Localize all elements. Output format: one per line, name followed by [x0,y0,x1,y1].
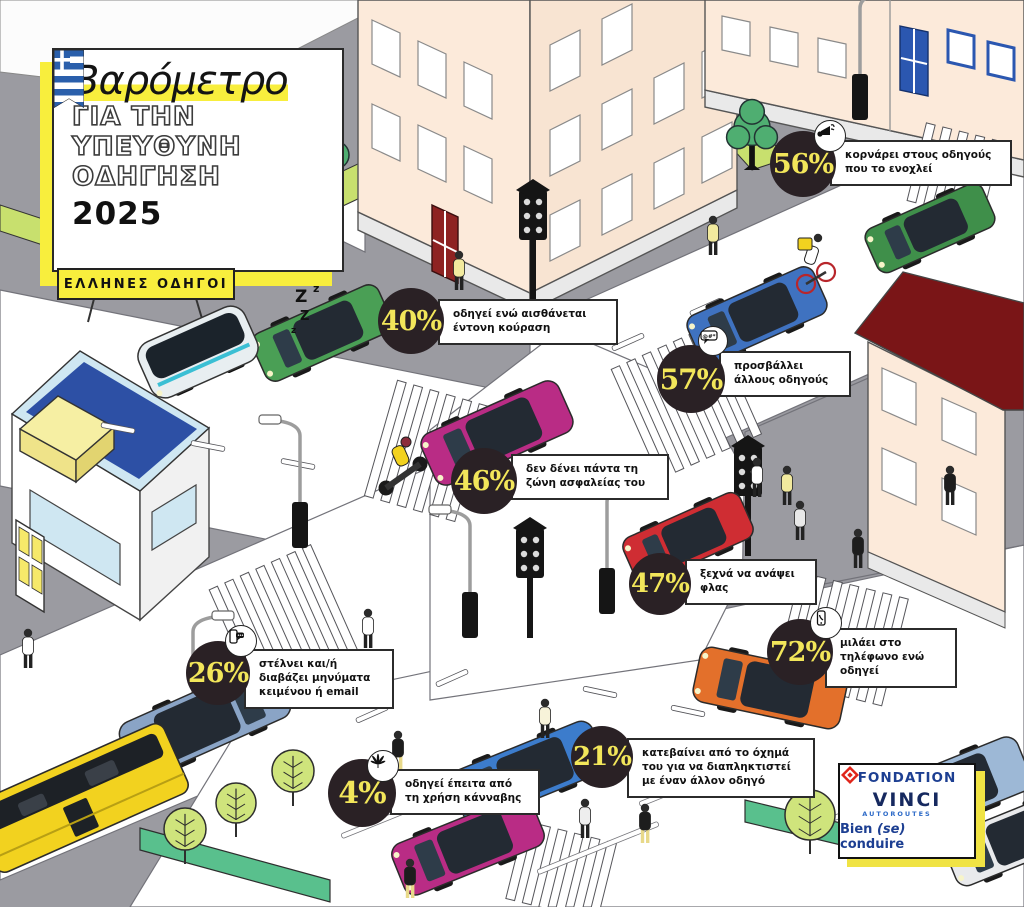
logo-autoroutes-text: AUTOROUTES [862,810,931,818]
logo-tagline: Bien (se) conduire [840,822,974,852]
title-main: Βαρόμετρο [72,60,326,102]
greek-flag-ribbon [54,50,84,108]
phone-call-icon [810,607,842,639]
callout-text: στέλνει και/ή διαβάζει μηνύματα κειμένου… [244,649,394,709]
horn-icon [814,120,846,152]
title-line3: ΥΠΕΥΘΥΝΗ [72,132,326,162]
svg-text:@#*!: @#*! [702,334,718,340]
callout-text: προσβάλλει άλλους οδηγούς [719,351,851,397]
title-year: 2025 [72,196,326,232]
callout-text: οδηγεί ενώ αισθάνεται έντονη κούραση [438,299,618,345]
callout-text: δεν δένει πάντα τη ζώνη ασφαλείας του [511,454,669,500]
greek-drivers-badge: ΕΛΛΗΝΕΣ ΟΔΗΓΟΙ [57,268,235,300]
infographic-poster: Z z Z z Βαρόμετρο ΓΙΑ ΤΗΝ ΥΠΕΥΘΥΝΗ ΟΔΗΓΗ… [0,0,1024,907]
callout-text: κατεβαίνει από το όχημά του για να διαπλ… [627,738,815,798]
callout-percent: 40% [378,288,444,354]
svg-text:z: z [313,282,319,295]
title-card: Βαρόμετρο ΓΙΑ ΤΗΝ ΥΠΕΥΘΥΝΗ ΟΔΗΓΗΣΗ 2025 [52,48,344,272]
logo-vinci-text: VINCI [873,789,942,811]
svg-text:Z: Z [300,309,309,324]
title-line4: ΟΔΗΓΗΣΗ [72,162,326,192]
logo-fondation-text: FONDATION [858,770,957,786]
callout-text: κορνάρει στους οδηγούς που το ενοχλεί [830,140,1012,186]
callout-text: μιλάει στο τηλέφωνο ενώ οδηγεί [825,628,957,688]
callout-percent: 47% [629,553,691,615]
fondation-vinci-logo: FONDATION VINCI AUTOROUTES Bien (se) con… [838,763,976,859]
cannabis-leaf-icon [367,750,399,782]
svg-text:Z: Z [295,287,307,307]
insult-speech-bubble-icon: @#*! [698,326,728,356]
callout-percent: 21% [571,726,633,788]
callout-text: οδηγεί έπειτα από τη χρήση κάνναβης [390,769,540,815]
callout-percent: 46% [451,448,517,514]
vinci-red-emblem-icon [840,765,860,785]
text-message-icon [225,625,257,657]
title-line2: ΓΙΑ ΤΗΝ [72,102,326,132]
callout-text: ξεχνά να ανάψει φλας [685,559,817,605]
svg-text:z: z [291,326,296,336]
